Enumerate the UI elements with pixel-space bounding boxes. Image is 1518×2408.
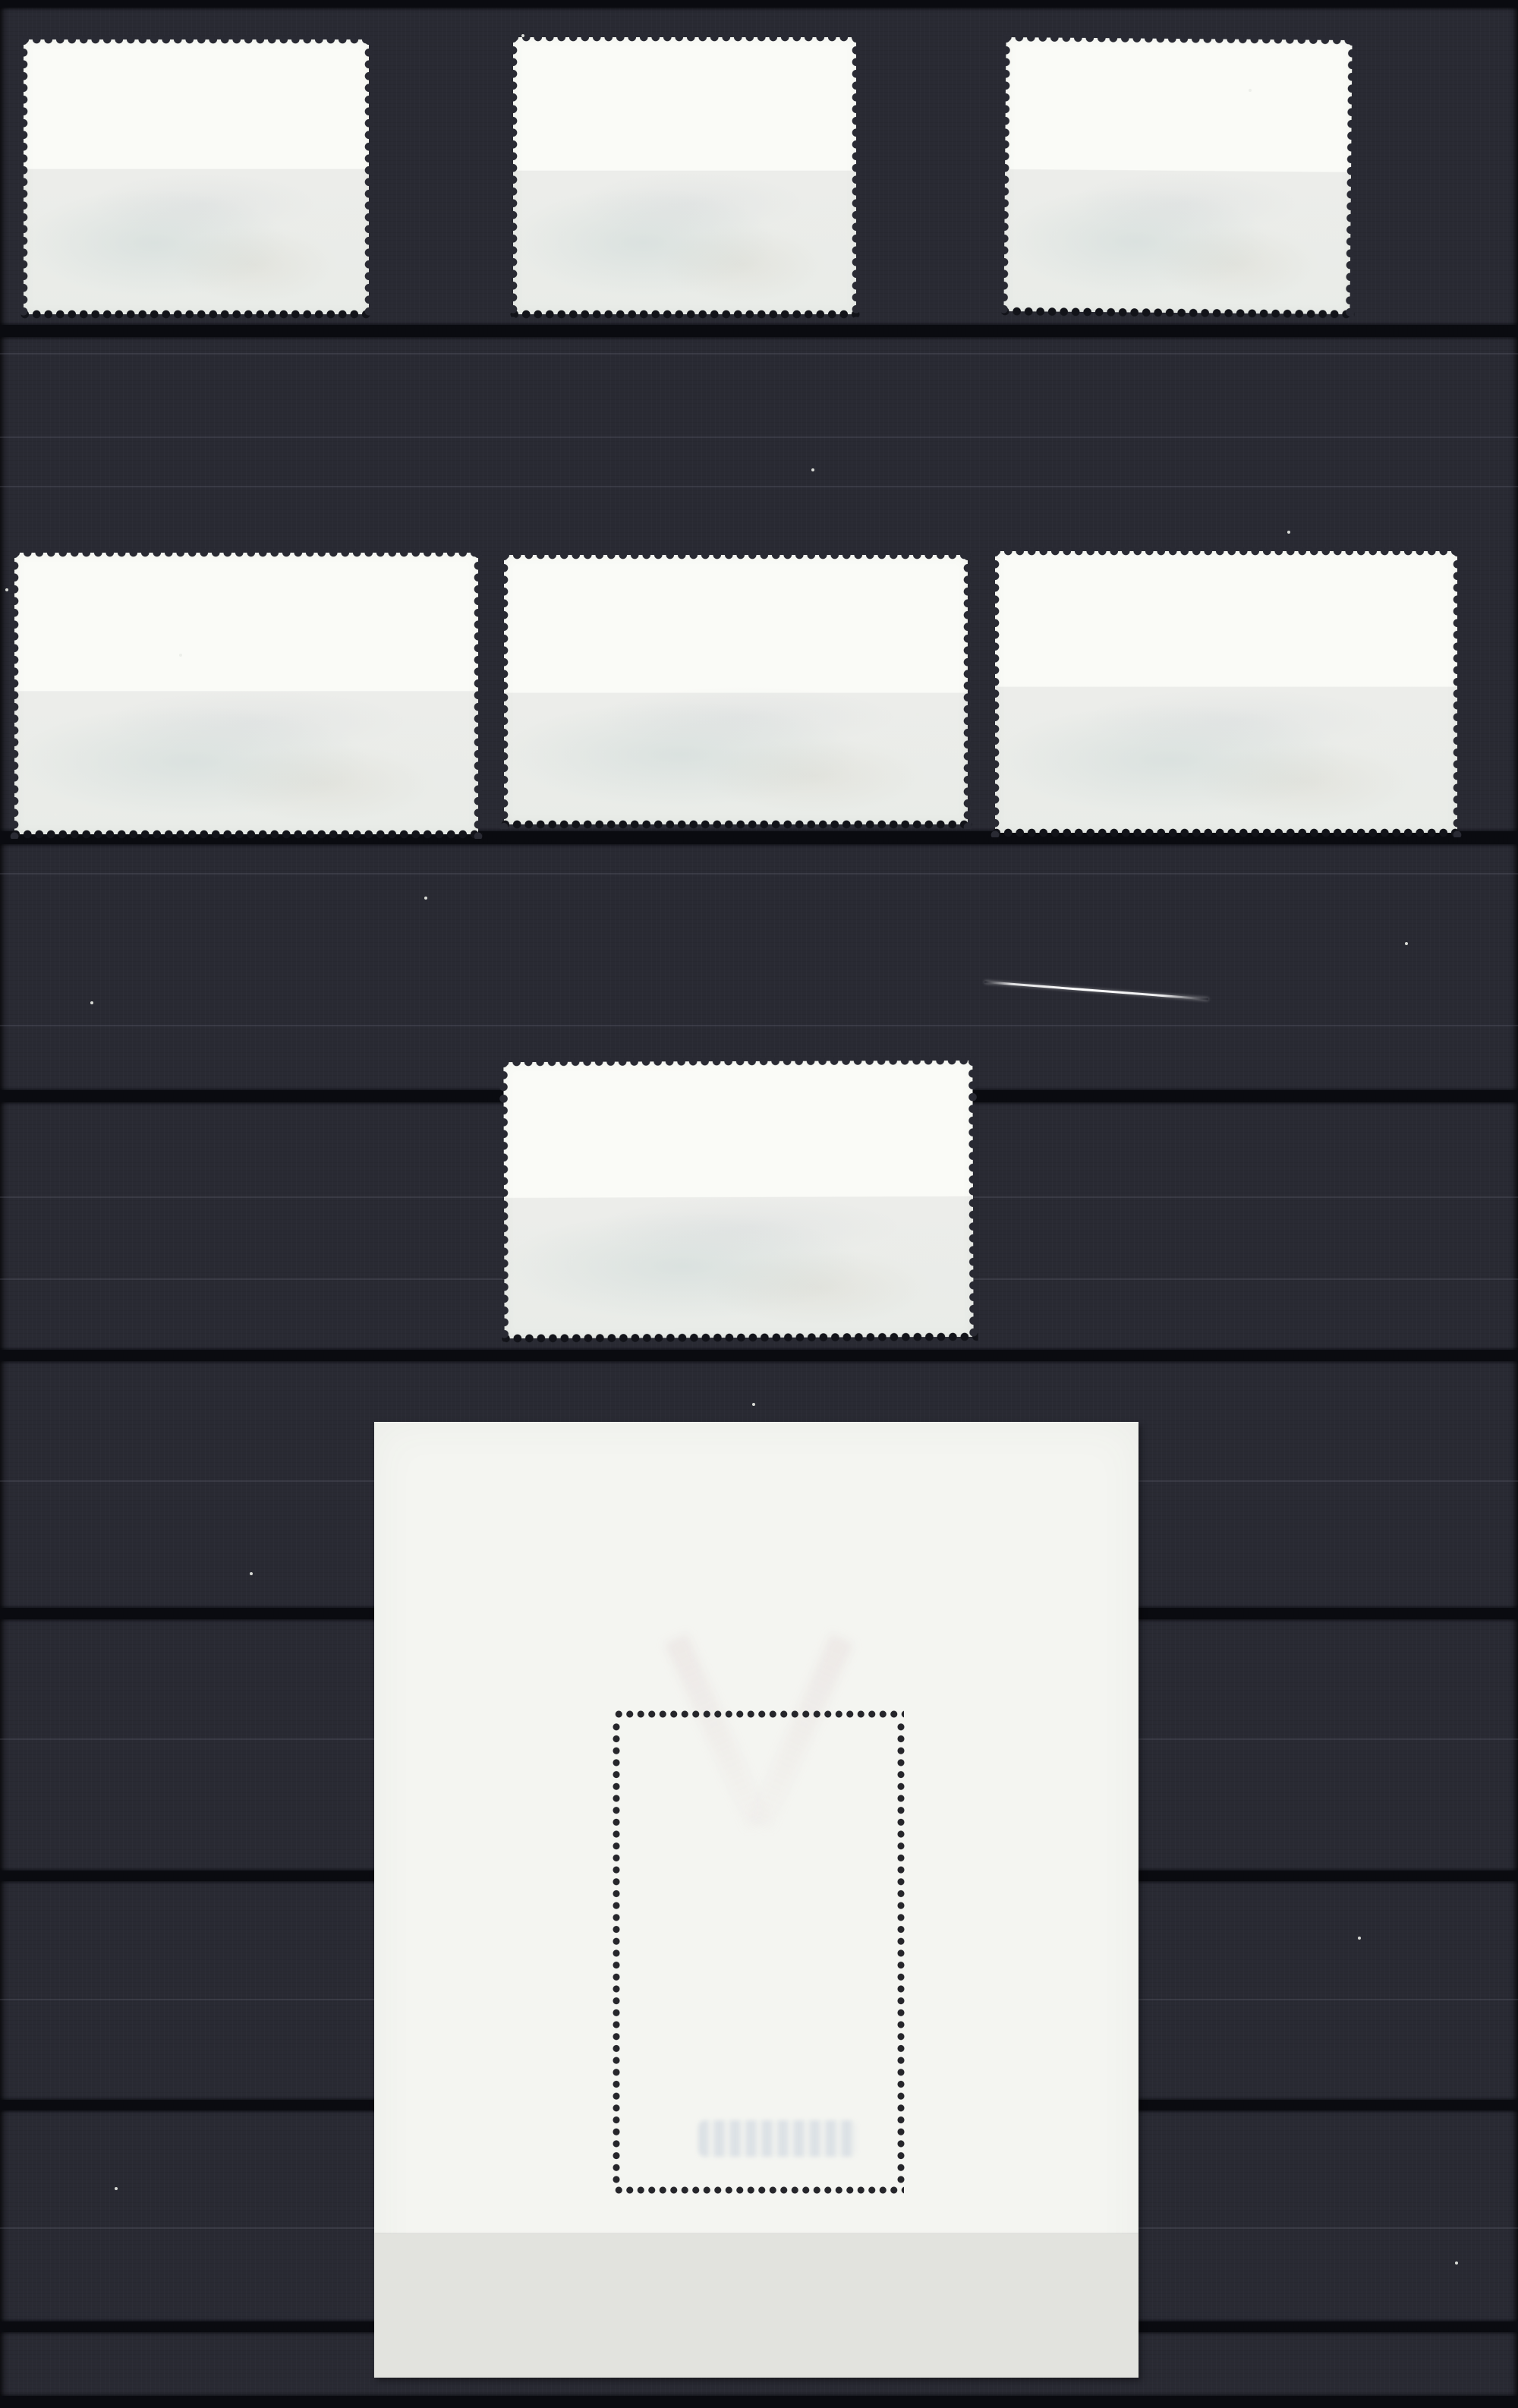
- dust-specks: [0, 0, 2, 2]
- pocket-shadow-line: [0, 325, 1518, 337]
- perforation-dots-top: [613, 1710, 904, 1718]
- perforation-right: [963, 550, 972, 829]
- stamp-paper: [995, 551, 1457, 833]
- perforation-dots-left: [613, 1721, 620, 2183]
- pocket-shadow-line: [0, 0, 1518, 8]
- perforation-top: [19, 35, 373, 44]
- perforation-bottom: [19, 310, 373, 319]
- perforation-bottom: [500, 1332, 978, 1343]
- pocket-shadow-line: [0, 1350, 1518, 1361]
- strip-seam-line: [0, 873, 1518, 875]
- perforation-right: [968, 1056, 978, 1341]
- strip-seam-line: [0, 353, 1518, 355]
- perforation-right: [852, 33, 861, 319]
- stamp-paper: [1003, 37, 1352, 314]
- stamp-paper: [14, 553, 478, 834]
- perforation-left: [990, 547, 1000, 837]
- perforation-dots-bottom: [613, 2186, 904, 2194]
- stamp-back-6: [990, 547, 1462, 837]
- perforation-left: [509, 33, 518, 319]
- strip-seam-line: [0, 1025, 1518, 1026]
- perforation-right: [364, 35, 373, 319]
- stockbook-page: [0, 0, 1518, 2408]
- perforation-left: [499, 550, 509, 829]
- souvenir-sheet-back: [374, 1422, 1138, 2378]
- stamp-paper: [24, 39, 369, 314]
- stamp-paper: [504, 555, 968, 824]
- perforation-bottom: [10, 830, 483, 839]
- perforation-top: [509, 33, 861, 42]
- perforation-dots-right: [897, 1721, 905, 2183]
- perforation-top: [990, 547, 1462, 556]
- perforation-right: [1453, 547, 1462, 837]
- perforation-top: [10, 548, 483, 557]
- stamp-back-1: [19, 35, 373, 319]
- stamp-paper: [503, 1061, 973, 1338]
- stamp-back-3: [999, 33, 1356, 319]
- stamp-back-5: [499, 550, 972, 829]
- sheet-bottom-show-through-band: [374, 2234, 1138, 2378]
- perforation-top: [499, 1056, 977, 1067]
- strip-seam-line: [0, 486, 1518, 487]
- perforation-left: [19, 35, 28, 319]
- perforation-bottom: [990, 828, 1462, 837]
- pocket-shadow-line: [0, 2396, 1518, 2408]
- stamp-paper: [513, 37, 856, 314]
- stamp-back-4: [10, 548, 483, 839]
- perforation-top: [499, 550, 972, 559]
- perforation-left: [10, 548, 19, 839]
- perforation-right: [474, 548, 483, 839]
- stamp-back-7: [499, 1056, 978, 1343]
- strip-seam-line: [0, 437, 1518, 438]
- stamp-back-2: [509, 33, 861, 319]
- perforation-bottom: [509, 310, 861, 319]
- sheet-stamp-perforation-outline: [616, 1714, 901, 2190]
- perforation-bottom: [499, 820, 972, 829]
- perforation-left: [499, 1057, 509, 1343]
